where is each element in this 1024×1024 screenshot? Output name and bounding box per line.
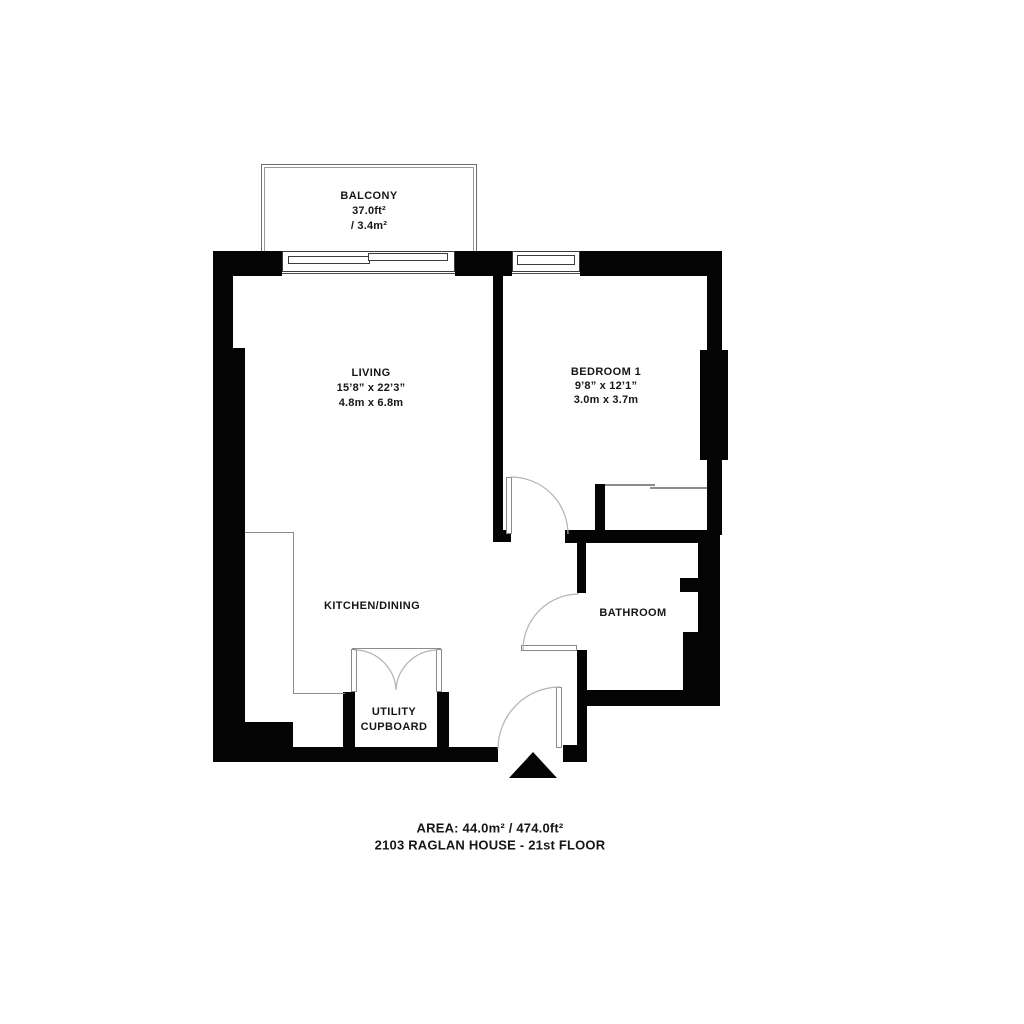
- wardrobe-sliding-line-left: [605, 484, 655, 486]
- wall-left-lower: [213, 348, 245, 750]
- utility-label-line-2: CUPBOARD: [361, 721, 428, 733]
- balcony-area-metric: / 3.4m²: [351, 220, 387, 232]
- wall-right-pillar: [700, 350, 728, 460]
- wall-utility-right: [437, 692, 449, 750]
- wall-right-mid: [707, 460, 722, 535]
- wall-bottom-left-step: [213, 722, 293, 750]
- wardrobe-sliding-line-right: [650, 487, 707, 489]
- kitchen-counter-side-line: [293, 532, 294, 694]
- wall-utility-left: [343, 692, 355, 750]
- kitchen-counter-top-line: [245, 532, 293, 533]
- wall-hall-bathroom-lower: [577, 650, 587, 747]
- wall-entrance-foot: [563, 745, 587, 762]
- bedroom-window-sill-line: [512, 273, 580, 274]
- bathroom-door-leaf: [521, 645, 577, 651]
- bedroom-window-inner: [517, 255, 575, 265]
- wall-right-upper: [707, 276, 722, 350]
- wall-bedroom-bottom: [565, 530, 707, 543]
- wall-hall-bathroom-upper: [577, 543, 586, 593]
- utility-door-header-line: [352, 648, 441, 649]
- utility-door-leaf-left: [351, 649, 357, 692]
- footer-area-text: AREA: 44.0m² / 474.0ft²: [417, 821, 564, 836]
- door-arcs-overlay: [0, 0, 1024, 1024]
- kitchen-label: KITCHEN/DINING: [324, 600, 420, 612]
- wall-bathroom-right: [698, 535, 720, 635]
- balcony-sliding-panel-left: [288, 256, 370, 264]
- entrance-door-arc: [498, 687, 560, 749]
- bathroom-door-arc: [523, 594, 579, 650]
- wall-left-upper: [213, 276, 233, 348]
- wall-shower-stub: [680, 578, 698, 592]
- kitchen-counter-bottom-line: [293, 693, 345, 694]
- wall-wardrobe-stub: [595, 484, 605, 531]
- entrance-door-leaf: [556, 687, 562, 748]
- living-dims-metric: 4.8m x 6.8m: [339, 397, 404, 409]
- wall-bottom: [213, 747, 498, 762]
- wall-top-middle: [455, 251, 512, 276]
- bedroom-dims-imperial: 9’8” x 12’1”: [575, 380, 637, 392]
- utility-door-arc-left: [354, 650, 396, 690]
- utility-door-leaf-right: [436, 649, 442, 692]
- wall-living-bedroom-divider: [493, 276, 503, 533]
- bathroom-label: BATHROOM: [599, 607, 666, 619]
- bedroom-label: BEDROOM 1: [571, 366, 641, 378]
- bedroom-door-arc: [511, 477, 568, 534]
- bedroom-dims-metric: 3.0m x 3.7m: [574, 394, 639, 406]
- entrance-arrow-icon: [509, 752, 557, 778]
- wall-top-right: [580, 251, 722, 276]
- living-label: LIVING: [351, 367, 390, 379]
- wall-bathroom-bottom: [577, 690, 720, 706]
- wall-top-left: [213, 251, 282, 276]
- utility-door-arc-right: [396, 650, 438, 690]
- floor-plan: BALCONY 37.0ft² / 3.4m² LIVING 15’8” x 2…: [0, 0, 1024, 1024]
- balcony-door-sill-line: [282, 273, 455, 274]
- balcony-label: BALCONY: [340, 190, 397, 202]
- footer-unit-text: 2103 RAGLAN HOUSE - 21st FLOOR: [375, 838, 606, 853]
- living-dims-imperial: 15’8” x 22’3”: [337, 382, 406, 394]
- balcony-sliding-panel-right: [368, 253, 448, 261]
- balcony-area-imperial: 37.0ft²: [352, 205, 386, 217]
- utility-label-line-1: UTILITY: [372, 706, 416, 718]
- bedroom-door-leaf: [506, 477, 512, 534]
